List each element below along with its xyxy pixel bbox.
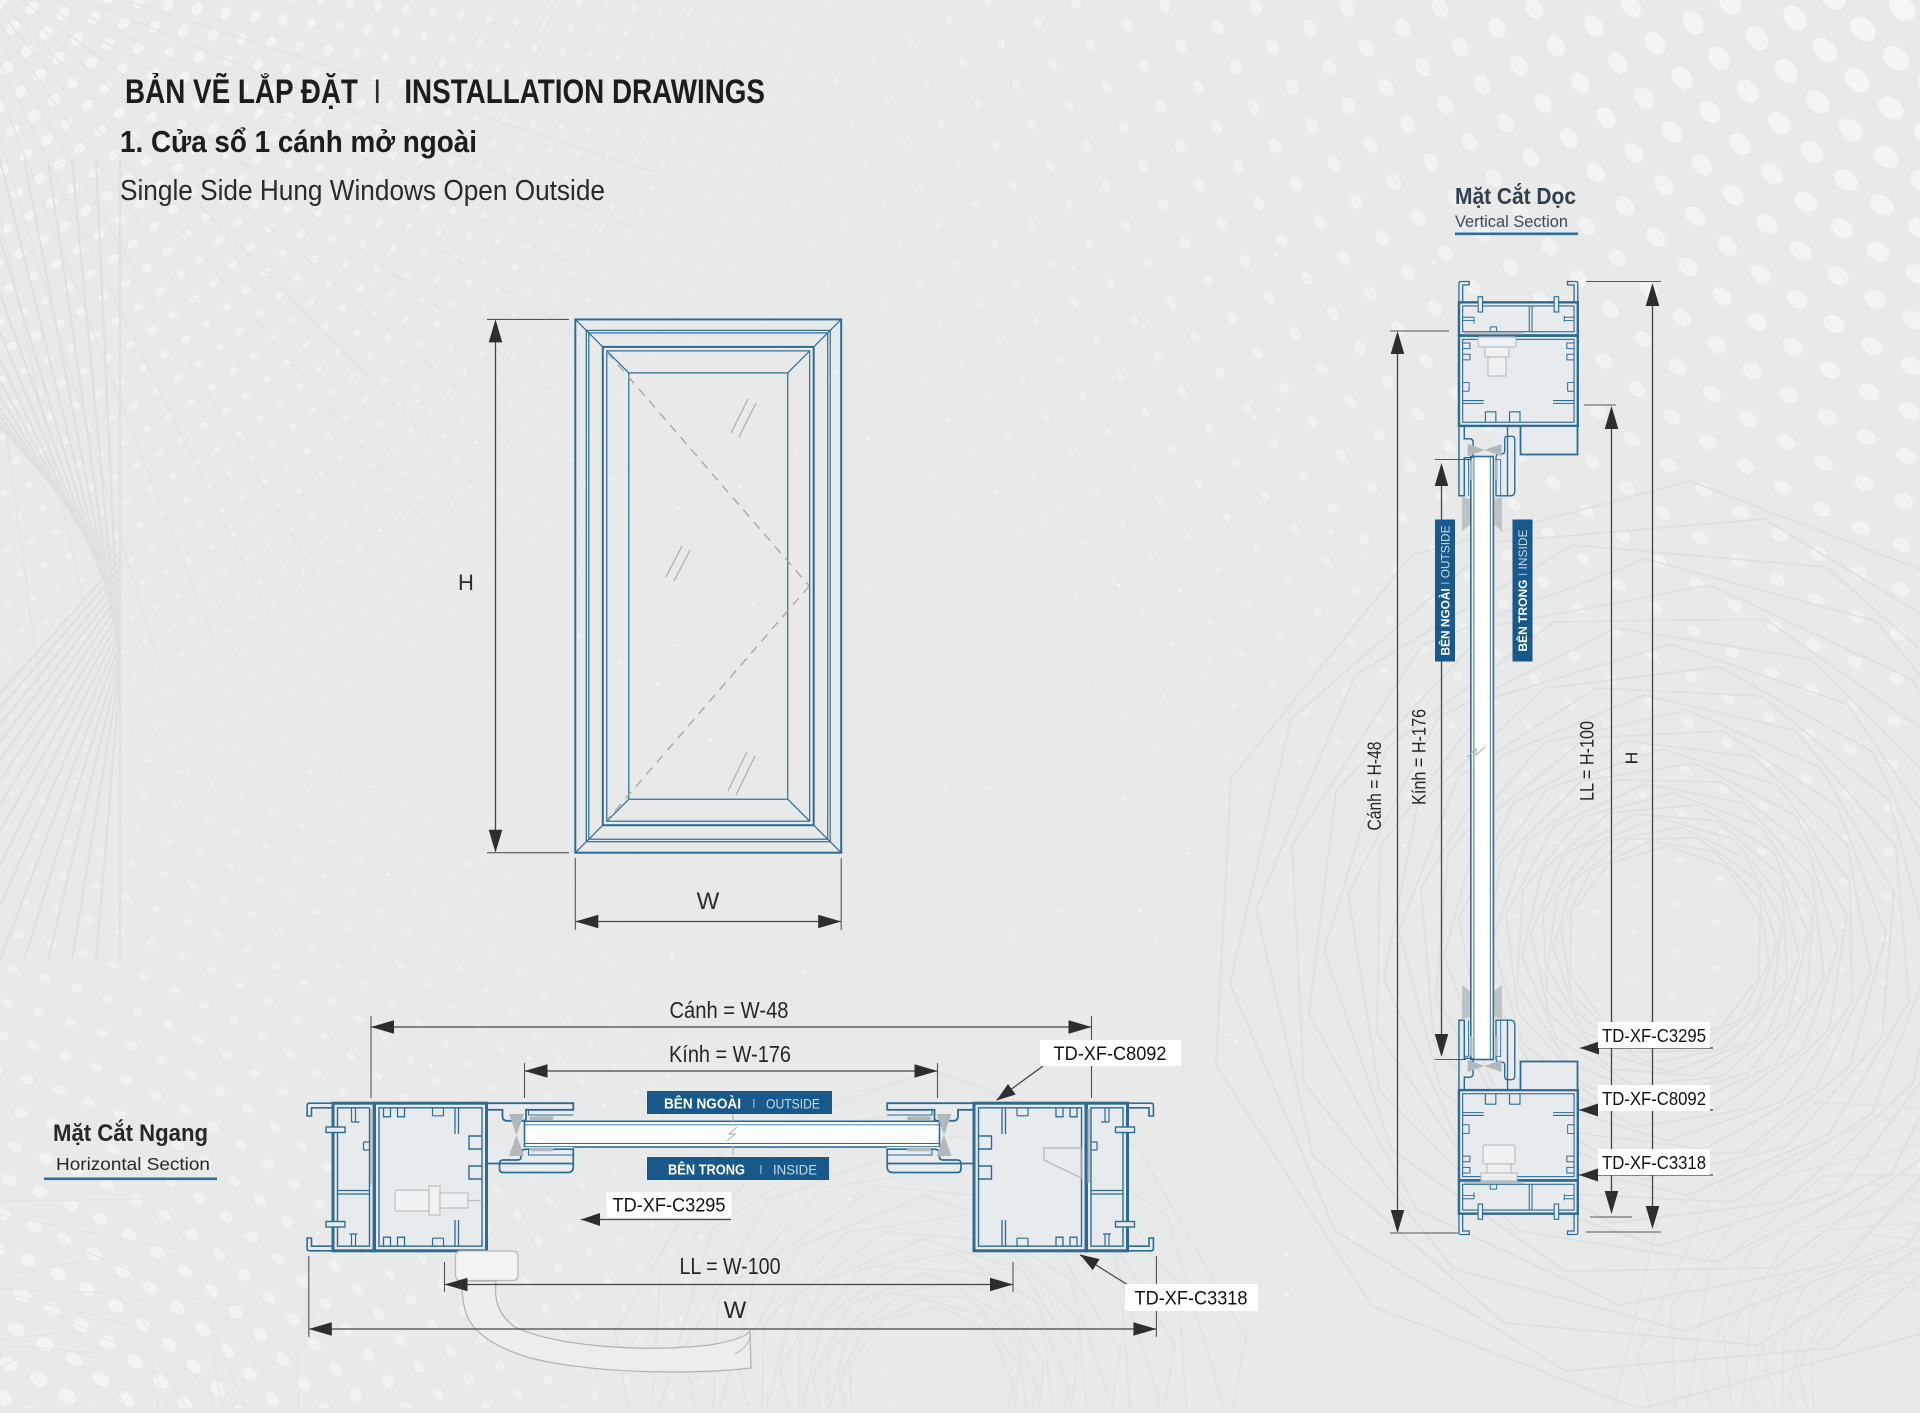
svg-text:BÊN NGOÀI I OUTSIDE: BÊN NGOÀI I OUTSIDE — [1440, 525, 1453, 655]
svg-text:TD-XF-C3295: TD-XF-C3295 — [613, 1196, 726, 1217]
svg-text:TD-XF-C3318: TD-XF-C3318 — [1602, 1153, 1706, 1173]
svg-text:Mặt Cắt Dọc: Mặt Cắt Dọc — [1455, 182, 1576, 209]
svg-text:TD-XF-C8092: TD-XF-C8092 — [1602, 1089, 1706, 1109]
svg-text:BÊN TRONG I INSIDE: BÊN TRONG I INSIDE — [1517, 529, 1530, 651]
svg-text:I: I — [752, 1096, 756, 1111]
svg-text:Cánh = W-48: Cánh = W-48 — [670, 997, 789, 1023]
svg-text:INSIDE: INSIDE — [773, 1162, 817, 1178]
svg-text:H: H — [1622, 752, 1642, 765]
svg-text:OUTSIDE: OUTSIDE — [766, 1096, 820, 1112]
svg-text:1. Cửa sổ 1 cánh mở ngoài: 1. Cửa sổ 1 cánh mở ngoài — [120, 124, 477, 159]
svg-text:TD-XF-C8092: TD-XF-C8092 — [1054, 1044, 1167, 1065]
svg-text:BÊN TRONG: BÊN TRONG — [668, 1161, 745, 1179]
svg-text:Vertical Section: Vertical Section — [1455, 213, 1568, 231]
svg-text:H: H — [458, 570, 474, 595]
svg-text:LL = H-100: LL = H-100 — [1577, 721, 1599, 801]
svg-text:W: W — [724, 1297, 747, 1324]
svg-text:Mặt Cắt Ngang: Mặt Cắt Ngang — [53, 1119, 208, 1147]
svg-text:TD-XF-C3295: TD-XF-C3295 — [1602, 1026, 1706, 1046]
svg-text:I: I — [759, 1162, 763, 1177]
svg-text:TD-XF-C3318: TD-XF-C3318 — [1135, 1289, 1248, 1310]
svg-text:W: W — [697, 888, 720, 915]
svg-text:Kính = W-176: Kính = W-176 — [669, 1041, 791, 1067]
svg-text:LL = W-100: LL = W-100 — [680, 1253, 781, 1279]
svg-text:BÊN NGOÀI: BÊN NGOÀI — [664, 1095, 741, 1113]
svg-text:Single Side Hung Windows Open: Single Side Hung Windows Open Outside — [120, 175, 605, 207]
svg-text:Horizontal Section: Horizontal Section — [56, 1154, 210, 1174]
svg-text:Kính = H-176: Kính = H-176 — [1409, 709, 1431, 805]
svg-text:BẢN VẼ LẮP ĐẶT I INSTALLATI: BẢN VẼ LẮP ĐẶT I INSTALLATION DRAWINGS — [125, 73, 765, 111]
svg-text:Cánh = H-48: Cánh = H-48 — [1364, 742, 1386, 831]
